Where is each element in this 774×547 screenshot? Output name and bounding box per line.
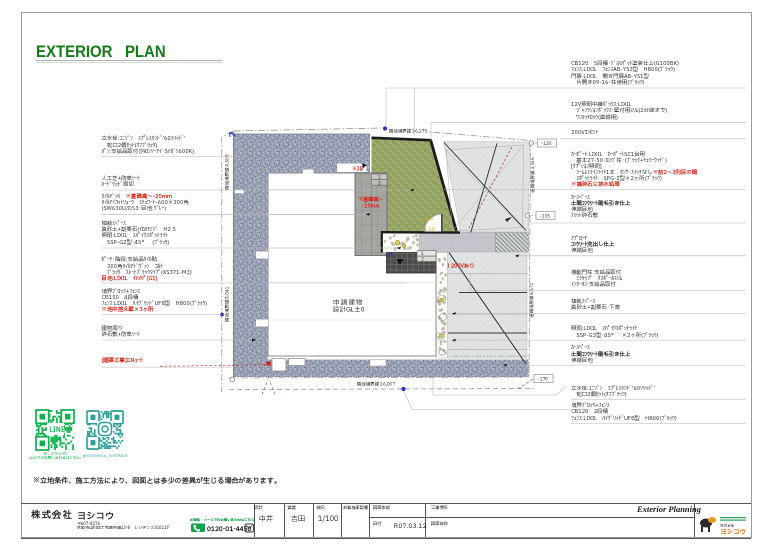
- svg-text:ヨシコウ: ヨシコウ: [720, 527, 747, 536]
- svg-text:LINE: LINE: [49, 426, 65, 436]
